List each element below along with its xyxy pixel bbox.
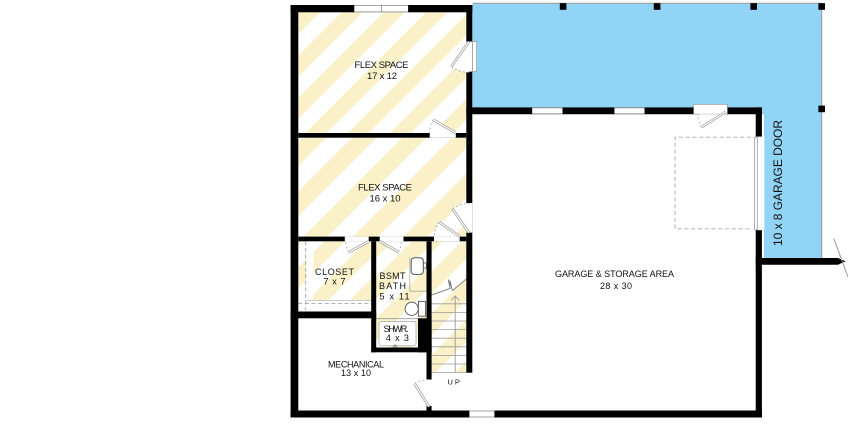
svg-text:BATH: BATH bbox=[379, 281, 406, 291]
svg-text:4 x 3: 4 x 3 bbox=[386, 333, 409, 343]
svg-text:28 x 30: 28 x 30 bbox=[600, 281, 632, 291]
svg-text:13 x 10: 13 x 10 bbox=[341, 368, 371, 378]
svg-text:5 x 11: 5 x 11 bbox=[380, 292, 410, 302]
svg-text:BSMT: BSMT bbox=[380, 271, 407, 281]
svg-text:FLEX SPACE: FLEX SPACE bbox=[358, 183, 412, 194]
svg-text:GARAGE & STORAGE AREA: GARAGE & STORAGE AREA bbox=[555, 269, 674, 279]
svg-text:7 x 7: 7 x 7 bbox=[324, 277, 346, 287]
svg-text:CLOSET: CLOSET bbox=[315, 267, 355, 277]
svg-text:FLEX SPACE: FLEX SPACE bbox=[355, 60, 409, 71]
svg-text:17 x 12: 17 x 12 bbox=[367, 71, 397, 82]
svg-text:16 x 10: 16 x 10 bbox=[370, 194, 401, 205]
svg-text:10 x 8 GARAGE DOOR: 10 x 8 GARAGE DOOR bbox=[771, 120, 785, 246]
